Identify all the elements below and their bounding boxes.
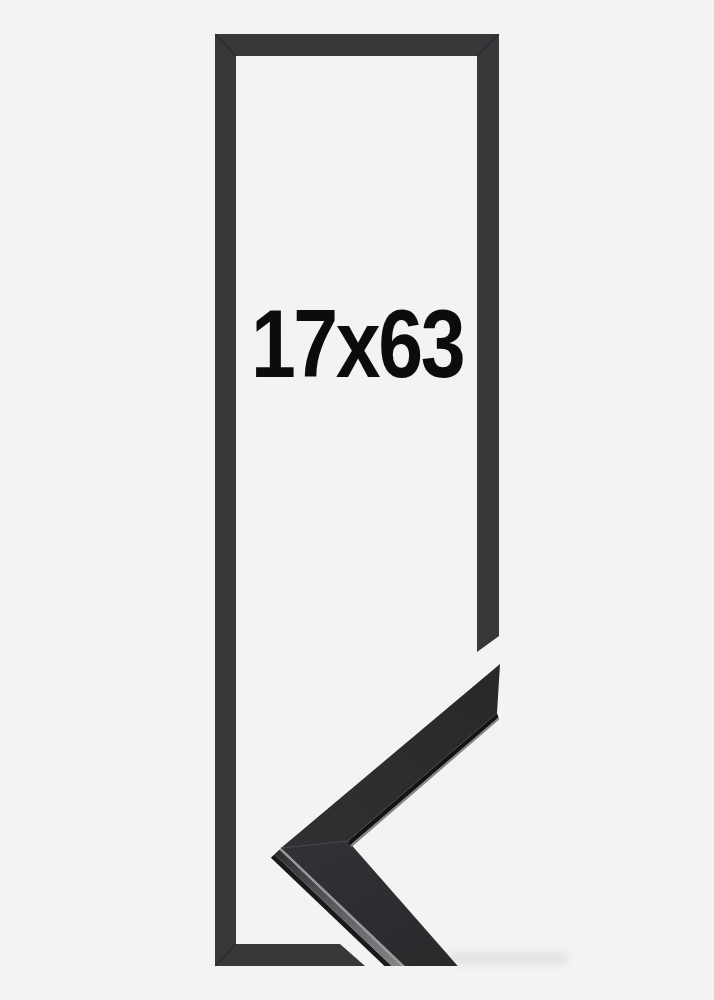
frame-size-label: 17x63 [238,296,477,392]
frame-outline-right-bar [477,34,499,652]
frame-outline-left-bar [215,34,236,966]
corner-upper-arm-top-face [281,664,500,848]
frame-outline-graphic [0,0,714,1000]
corner-sample-shadow [448,952,568,965]
frame-size-preview-image: 17x63 [0,0,714,1000]
frame-outline-top-bar [215,34,499,56]
frame-outline-bottom-bar [215,944,365,966]
frame-corner-sample [271,664,500,982]
